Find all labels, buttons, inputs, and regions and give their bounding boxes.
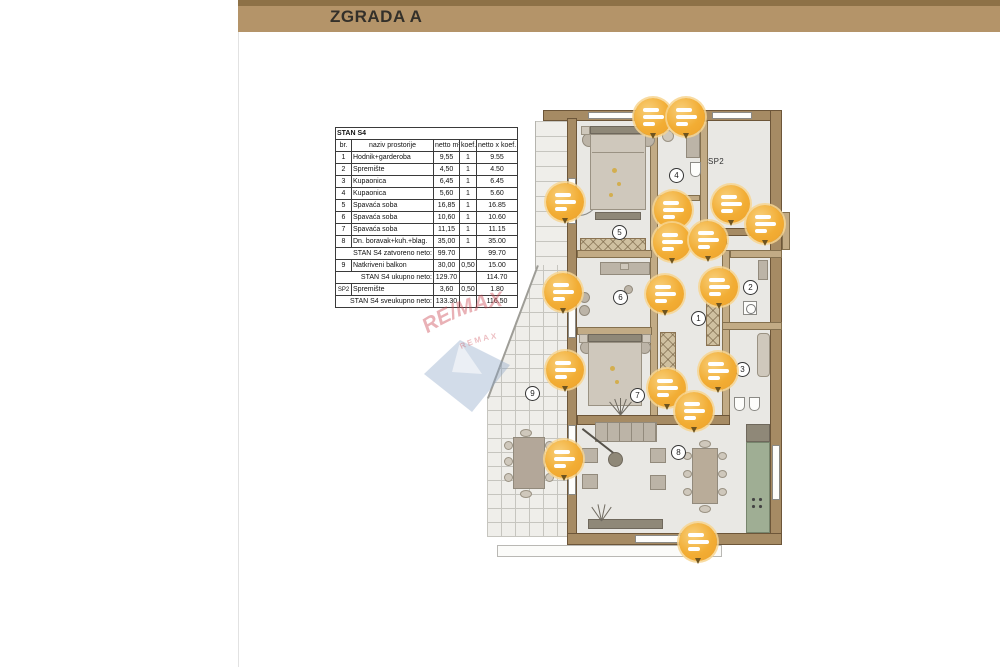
cell-name: Spavaća soba [352,224,434,236]
armchair [650,475,666,490]
chair [699,440,711,448]
fridge [746,424,770,442]
cell-total: 16.85 [477,200,518,212]
window [772,445,780,500]
armchair [650,448,666,463]
nightstand [642,334,651,343]
cell-netto: 10,60 [434,212,460,224]
photo-pin-icon[interactable] [746,205,784,243]
cell-koef: 1 [460,188,477,200]
cell-netto: 35,00 [434,236,460,248]
armchair [582,448,598,463]
photo-pin-icon[interactable] [700,268,738,306]
table-row: 2Spremište4,5014.50 [336,164,518,176]
cell-br: 5 [336,200,352,212]
chair [520,429,532,437]
photo-pin-icon[interactable] [667,98,705,136]
chair [699,505,711,513]
cell-total: 11.15 [477,224,518,236]
table-row: SP2Spremište3,600,501.80 [336,284,518,296]
photo-pin-icon[interactable] [689,221,727,259]
outdoor-table [513,437,545,489]
cell-name: Hodnik+garderoba [352,152,434,164]
wardrobe [580,238,646,251]
subtotal-row: STAN S4 ukupno neto:129.70114.70 [336,272,518,284]
grand-total-koef-empty [460,296,477,308]
subtotal-netto: 99.70 [434,248,460,260]
photo-pin-icon[interactable] [646,275,684,313]
cell-br: 4 [336,188,352,200]
wall [577,250,652,258]
cell-koef: 0,50 [460,284,477,296]
storage-label: SP2 [708,157,724,166]
cell-netto: 4,50 [434,164,460,176]
cell-name: Spavaća soba [352,212,434,224]
room-badge-1: 1 [691,311,706,326]
room-badge-3: 3 [735,362,750,377]
bed [590,134,646,210]
chair [718,452,727,460]
subtotal-label: STAN S4 ukupno neto: [336,272,434,284]
table-row: 7Spavaća soba11,15111.15 [336,224,518,236]
grand-total-row: STAN S4 sveukupno neto:133.30116.50 [336,296,518,308]
room-badge-6: 6 [613,290,628,305]
col-header-name: naziv prostorije [352,140,434,152]
toilet [734,397,745,411]
chair [718,470,727,478]
table-row: 5Spavaća soba16,85116.85 [336,200,518,212]
col-header-koef: koef. [460,140,477,152]
subtotal-total: 114.70 [477,272,518,284]
table-title: STAN S4 [336,128,518,140]
cell-total: 1.80 [477,284,518,296]
chair [718,488,727,496]
bed-bench [595,212,641,220]
sofa [595,422,657,442]
cell-netto: 6,45 [434,176,460,188]
col-header-total: netto x koef. m² [477,140,518,152]
kitchen-counter [746,442,770,533]
photo-pin-icon[interactable] [546,351,584,389]
cell-koef: 1 [460,212,477,224]
wall [730,250,782,258]
window [712,112,752,119]
chair [579,305,590,316]
subtotal-total: 99.70 [477,248,518,260]
watermark-balloon-notch [452,342,482,374]
nightstand [581,126,590,135]
table-row: 8Dn. boravak+kuh.+blag.35,00135.00 [336,236,518,248]
cell-name: Spremište [352,284,434,296]
subtotal-label: STAN S4 zatvoreno neto: [336,248,434,260]
grand-total-netto: 133.30 [434,296,460,308]
cell-koef: 1 [460,224,477,236]
bidet [749,397,760,411]
cell-total: 6.45 [477,176,518,188]
cell-br: 2 [336,164,352,176]
floor-lamp [608,452,623,467]
table-row: 9Natkriveni balkon30,000,5015.00 [336,260,518,272]
wall [700,121,708,228]
watermark-sub-text: REMAX [458,331,498,351]
photo-pin-icon[interactable] [712,185,750,223]
cell-br: 9 [336,260,352,272]
photo-pin-icon[interactable] [546,183,584,221]
room-badge-7: 7 [630,388,645,403]
bed-fold-line [592,152,644,153]
table-row: 4Kupaonica5,6015.60 [336,188,518,200]
cell-netto: 5,60 [434,188,460,200]
cell-br: 6 [336,212,352,224]
bed-headboard [588,334,642,342]
cell-netto: 30,00 [434,260,460,272]
cell-koef: 1 [460,152,477,164]
hob [750,496,764,510]
photo-pin-icon[interactable] [675,392,713,430]
cell-koef: 0,50 [460,260,477,272]
cell-total: 15.00 [477,260,518,272]
page-title: ZGRADA A [330,7,422,27]
cell-total: 9.55 [477,152,518,164]
cell-total: 10.60 [477,212,518,224]
page: ZGRADA A STAN S4 br. naziv prostorije ne… [0,0,1000,667]
grand-total-label: STAN S4 sveukupno neto: [336,296,434,308]
room-badge-5: 5 [612,225,627,240]
cell-name: Kupaonica [352,188,434,200]
cell-koef: 1 [460,236,477,248]
chair [683,470,692,478]
area-table: STAN S4 br. naziv prostorije netto m² ko… [335,127,517,308]
shower [757,333,770,377]
desk-item [620,263,629,270]
cell-koef: 1 [460,176,477,188]
shelf [758,260,768,280]
cell-netto: 16,85 [434,200,460,212]
subtotal-koef-empty [460,248,477,260]
wall [722,322,782,330]
subtotal-row: STAN S4 zatvoreno neto:99.7099.70 [336,248,518,260]
cell-total: 4.50 [477,164,518,176]
photo-pin-icon[interactable] [699,352,737,390]
chair [504,441,513,450]
cell-netto: 9,55 [434,152,460,164]
room-badge-8: 8 [671,445,686,460]
cell-netto: 11,15 [434,224,460,236]
subtotal-netto: 129.70 [434,272,460,284]
room-badge-4: 4 [669,168,684,183]
cell-br: 7 [336,224,352,236]
cell-koef: 1 [460,164,477,176]
cell-br: 8 [336,236,352,248]
washer-drum [746,304,756,314]
subtotal-koef-empty [460,272,477,284]
cell-name: Spavaća soba [352,200,434,212]
grand-total-total: 116.50 [477,296,518,308]
chair [504,457,513,466]
plant [588,505,614,521]
toilet [690,162,701,177]
window [588,112,634,119]
armchair [582,474,598,489]
svg-text:REMAX: REMAX [458,331,498,351]
cell-br: SP2 [336,284,352,296]
chair [520,490,532,498]
cell-name: Natkriveni balkon [352,260,434,272]
cell-name: Spremište [352,164,434,176]
table-row: 6Spavaća soba10,60110.60 [336,212,518,224]
photo-pin-icon[interactable] [544,273,582,311]
cell-netto: 3,60 [434,284,460,296]
photo-pin-icon[interactable] [545,440,583,478]
wardrobe [660,332,676,374]
room-badge-9: 9 [525,386,540,401]
cell-br: 1 [336,152,352,164]
left-divider [238,32,239,667]
cell-total: 5.60 [477,188,518,200]
cell-name: Kupaonica [352,176,434,188]
door-fan [605,398,635,415]
nightstand [579,334,588,343]
photo-pin-icon[interactable] [679,523,717,561]
table-row: 1Hodnik+garderoba9,5519.55 [336,152,518,164]
cell-br: 3 [336,176,352,188]
cell-total: 35.00 [477,236,518,248]
room-badge-2: 2 [743,280,758,295]
cell-koef: 1 [460,200,477,212]
chair [504,473,513,482]
cell-name: Dn. boravak+kuh.+blag. [352,236,434,248]
col-header-netto: netto m² [434,140,460,152]
photo-pin-icon[interactable] [653,223,691,261]
chair [683,488,692,496]
col-header-br: br. [336,140,352,152]
table-row: 3Kupaonica6,4516.45 [336,176,518,188]
dining-table [692,448,718,504]
